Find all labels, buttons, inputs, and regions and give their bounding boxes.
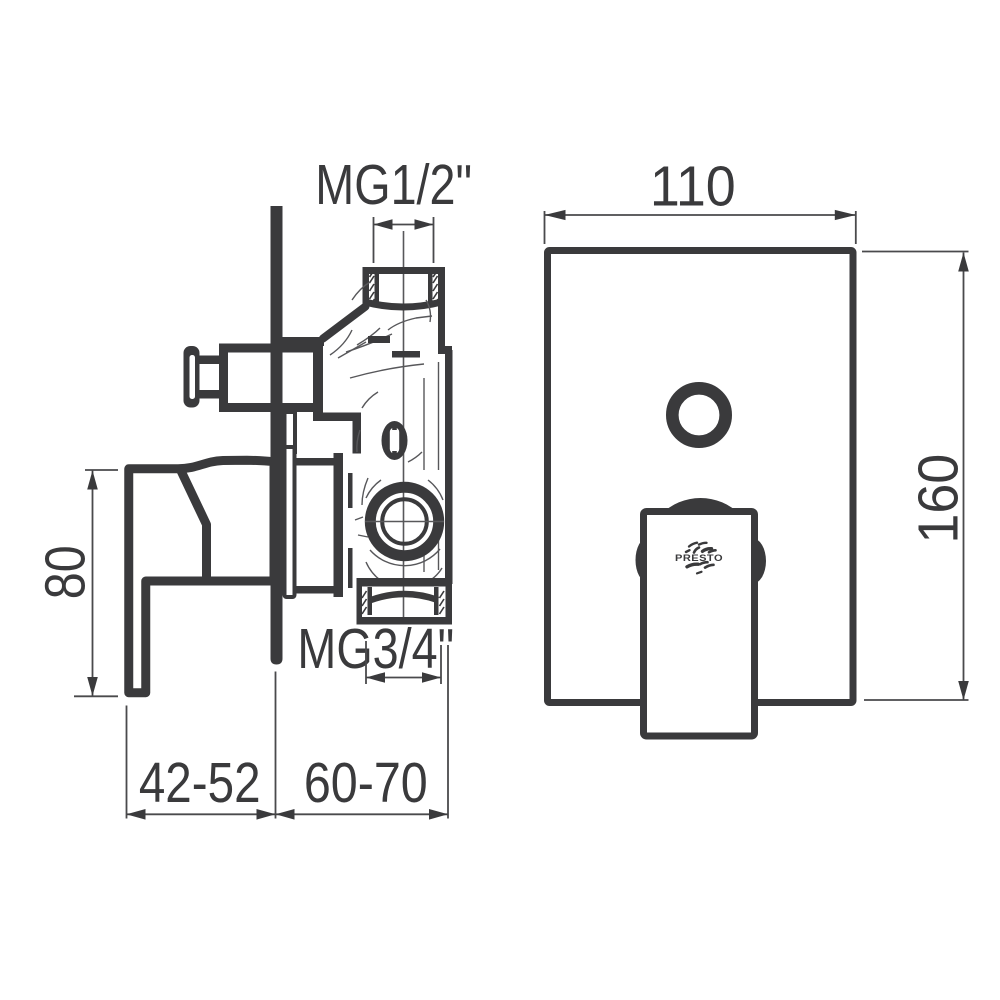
svg-text:PRESTO: PRESTO	[675, 553, 723, 564]
svg-text:42-52: 42-52	[139, 751, 261, 815]
svg-text:60-70: 60-70	[304, 751, 428, 815]
svg-text:80: 80	[34, 545, 98, 599]
svg-text:MG3/4": MG3/4"	[297, 618, 454, 681]
svg-text:160: 160	[906, 454, 970, 544]
svg-text:110: 110	[650, 154, 736, 218]
svg-text:MG1/2": MG1/2"	[315, 154, 472, 217]
